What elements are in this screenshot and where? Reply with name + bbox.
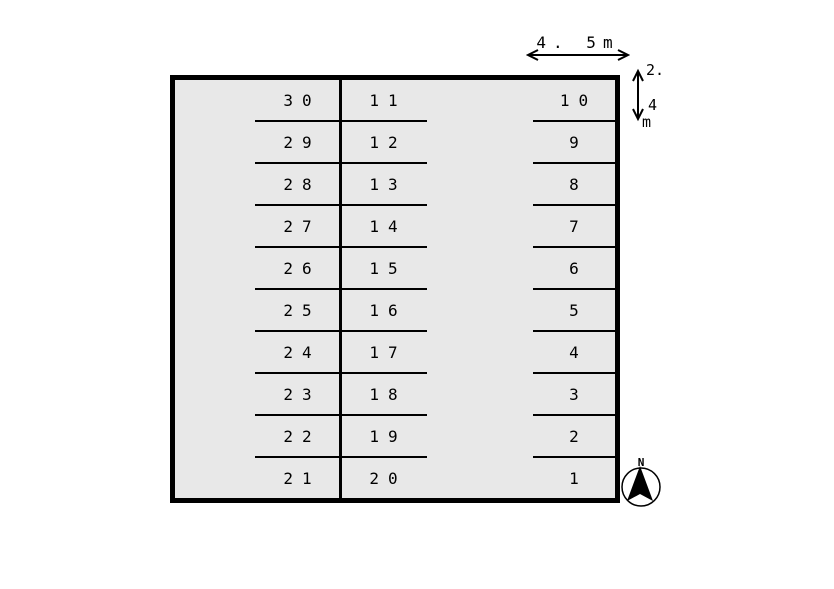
parking-stall-26: 26 <box>255 248 340 290</box>
width-dimension-arrow <box>526 48 630 62</box>
stall-number: 19 <box>369 427 406 446</box>
parking-stall-11: 11 <box>340 80 427 122</box>
stall-number: 9 <box>569 133 588 152</box>
parking-stall-23: 23 <box>255 374 340 416</box>
parking-stall-24: 24 <box>255 332 340 374</box>
height-dimension-label-line3: m <box>642 114 651 130</box>
parking-stall-6: 6 <box>533 248 615 290</box>
parking-stall-10: 10 <box>533 80 615 122</box>
parking-stall-17: 17 <box>340 332 427 374</box>
height-dimension-label-line2: 4 <box>648 97 657 113</box>
stall-number: 6 <box>569 259 588 278</box>
parking-stall-21: 21 <box>255 458 340 498</box>
stall-number: 11 <box>369 91 406 110</box>
stall-number: 10 <box>560 91 597 110</box>
site-plan: 30292827262524232221 1112131415161718192… <box>0 0 834 589</box>
stall-number: 5 <box>569 301 588 320</box>
parking-stall-4: 4 <box>533 332 615 374</box>
stall-number: 3 <box>569 385 588 404</box>
stall-number: 12 <box>369 133 406 152</box>
stall-number: 18 <box>369 385 406 404</box>
parking-stall-8: 8 <box>533 164 615 206</box>
parking-stall-15: 15 <box>340 248 427 290</box>
stall-number: 13 <box>369 175 406 194</box>
compass-north-icon: N <box>619 453 665 511</box>
stall-number: 29 <box>283 133 320 152</box>
parking-stall-22: 22 <box>255 416 340 458</box>
stall-number: 16 <box>369 301 406 320</box>
stall-number: 22 <box>283 427 320 446</box>
parking-stall-19: 19 <box>340 416 427 458</box>
stall-number: 1 <box>569 469 588 488</box>
parking-stall-14: 14 <box>340 206 427 248</box>
stall-column-right: 10987654321 <box>533 80 615 498</box>
stall-number: 24 <box>283 343 320 362</box>
parking-stall-9: 9 <box>533 122 615 164</box>
parking-stall-16: 16 <box>340 290 427 332</box>
parking-stall-5: 5 <box>533 290 615 332</box>
parking-stall-2: 2 <box>533 416 615 458</box>
stall-number: 30 <box>283 91 320 110</box>
stall-number: 4 <box>569 343 588 362</box>
parking-stall-1: 1 <box>533 458 615 498</box>
parking-stall-30: 30 <box>255 80 340 122</box>
stall-number: 23 <box>283 385 320 404</box>
stall-number: 25 <box>283 301 320 320</box>
compass-north-label: N <box>638 456 645 469</box>
parking-stall-13: 13 <box>340 164 427 206</box>
parking-stall-27: 27 <box>255 206 340 248</box>
stall-column-left: 30292827262524232221 <box>255 80 340 498</box>
stall-number: 8 <box>569 175 588 194</box>
parking-stall-18: 18 <box>340 374 427 416</box>
height-dimension-label-line1: 2. <box>646 62 664 78</box>
parking-stall-25: 25 <box>255 290 340 332</box>
stall-number: 20 <box>369 469 406 488</box>
stall-number: 2 <box>569 427 588 446</box>
stall-number: 15 <box>369 259 406 278</box>
stall-column-middle: 11121314151617181920 <box>340 80 427 498</box>
stall-number: 14 <box>369 217 406 236</box>
stall-number: 7 <box>569 217 588 236</box>
parking-stall-28: 28 <box>255 164 340 206</box>
stall-number: 26 <box>283 259 320 278</box>
parking-stall-7: 7 <box>533 206 615 248</box>
parking-stall-29: 29 <box>255 122 340 164</box>
stall-number: 17 <box>369 343 406 362</box>
parking-stall-12: 12 <box>340 122 427 164</box>
stall-number: 28 <box>283 175 320 194</box>
stall-number: 21 <box>283 469 320 488</box>
parking-lot-outline: 30292827262524232221 1112131415161718192… <box>170 75 620 503</box>
parking-stall-20: 20 <box>340 458 427 498</box>
stall-number: 27 <box>283 217 320 236</box>
parking-stall-3: 3 <box>533 374 615 416</box>
